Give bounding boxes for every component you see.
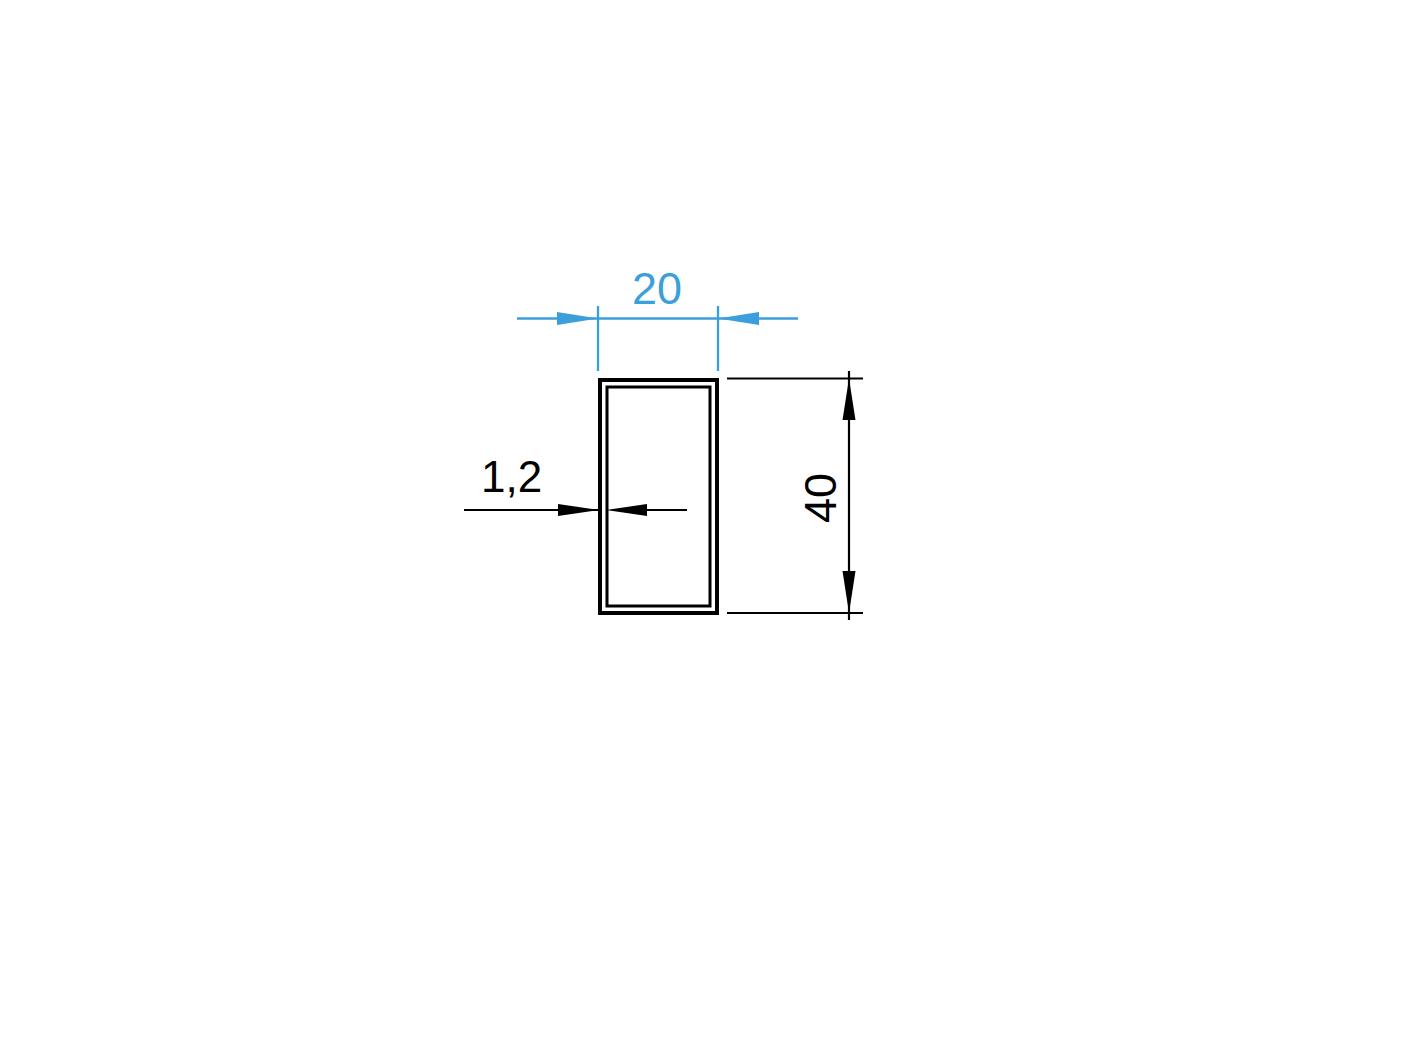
height-arrow-down-icon (843, 571, 856, 613)
tube-outer-wall (600, 380, 717, 613)
wall-thickness-dimension-value: 1,2 (481, 452, 542, 503)
tube-cross-section-drawing (0, 0, 1417, 1062)
height-arrow-up-icon (843, 379, 856, 421)
tube-profile (600, 380, 717, 613)
thickness-arrow-left-icon (606, 504, 647, 516)
technical-drawing-canvas: 20 40 1,2 (0, 0, 1417, 1062)
width-arrow-left-icon (557, 312, 598, 325)
tube-inner-wall (607, 387, 710, 606)
width-arrow-right-icon (718, 312, 759, 325)
width-dimension (517, 306, 798, 371)
thickness-arrow-right-icon (558, 504, 599, 516)
thickness-dimension (464, 504, 687, 516)
height-dimension-value: 40 (795, 473, 847, 523)
width-dimension-value: 20 (632, 263, 682, 315)
